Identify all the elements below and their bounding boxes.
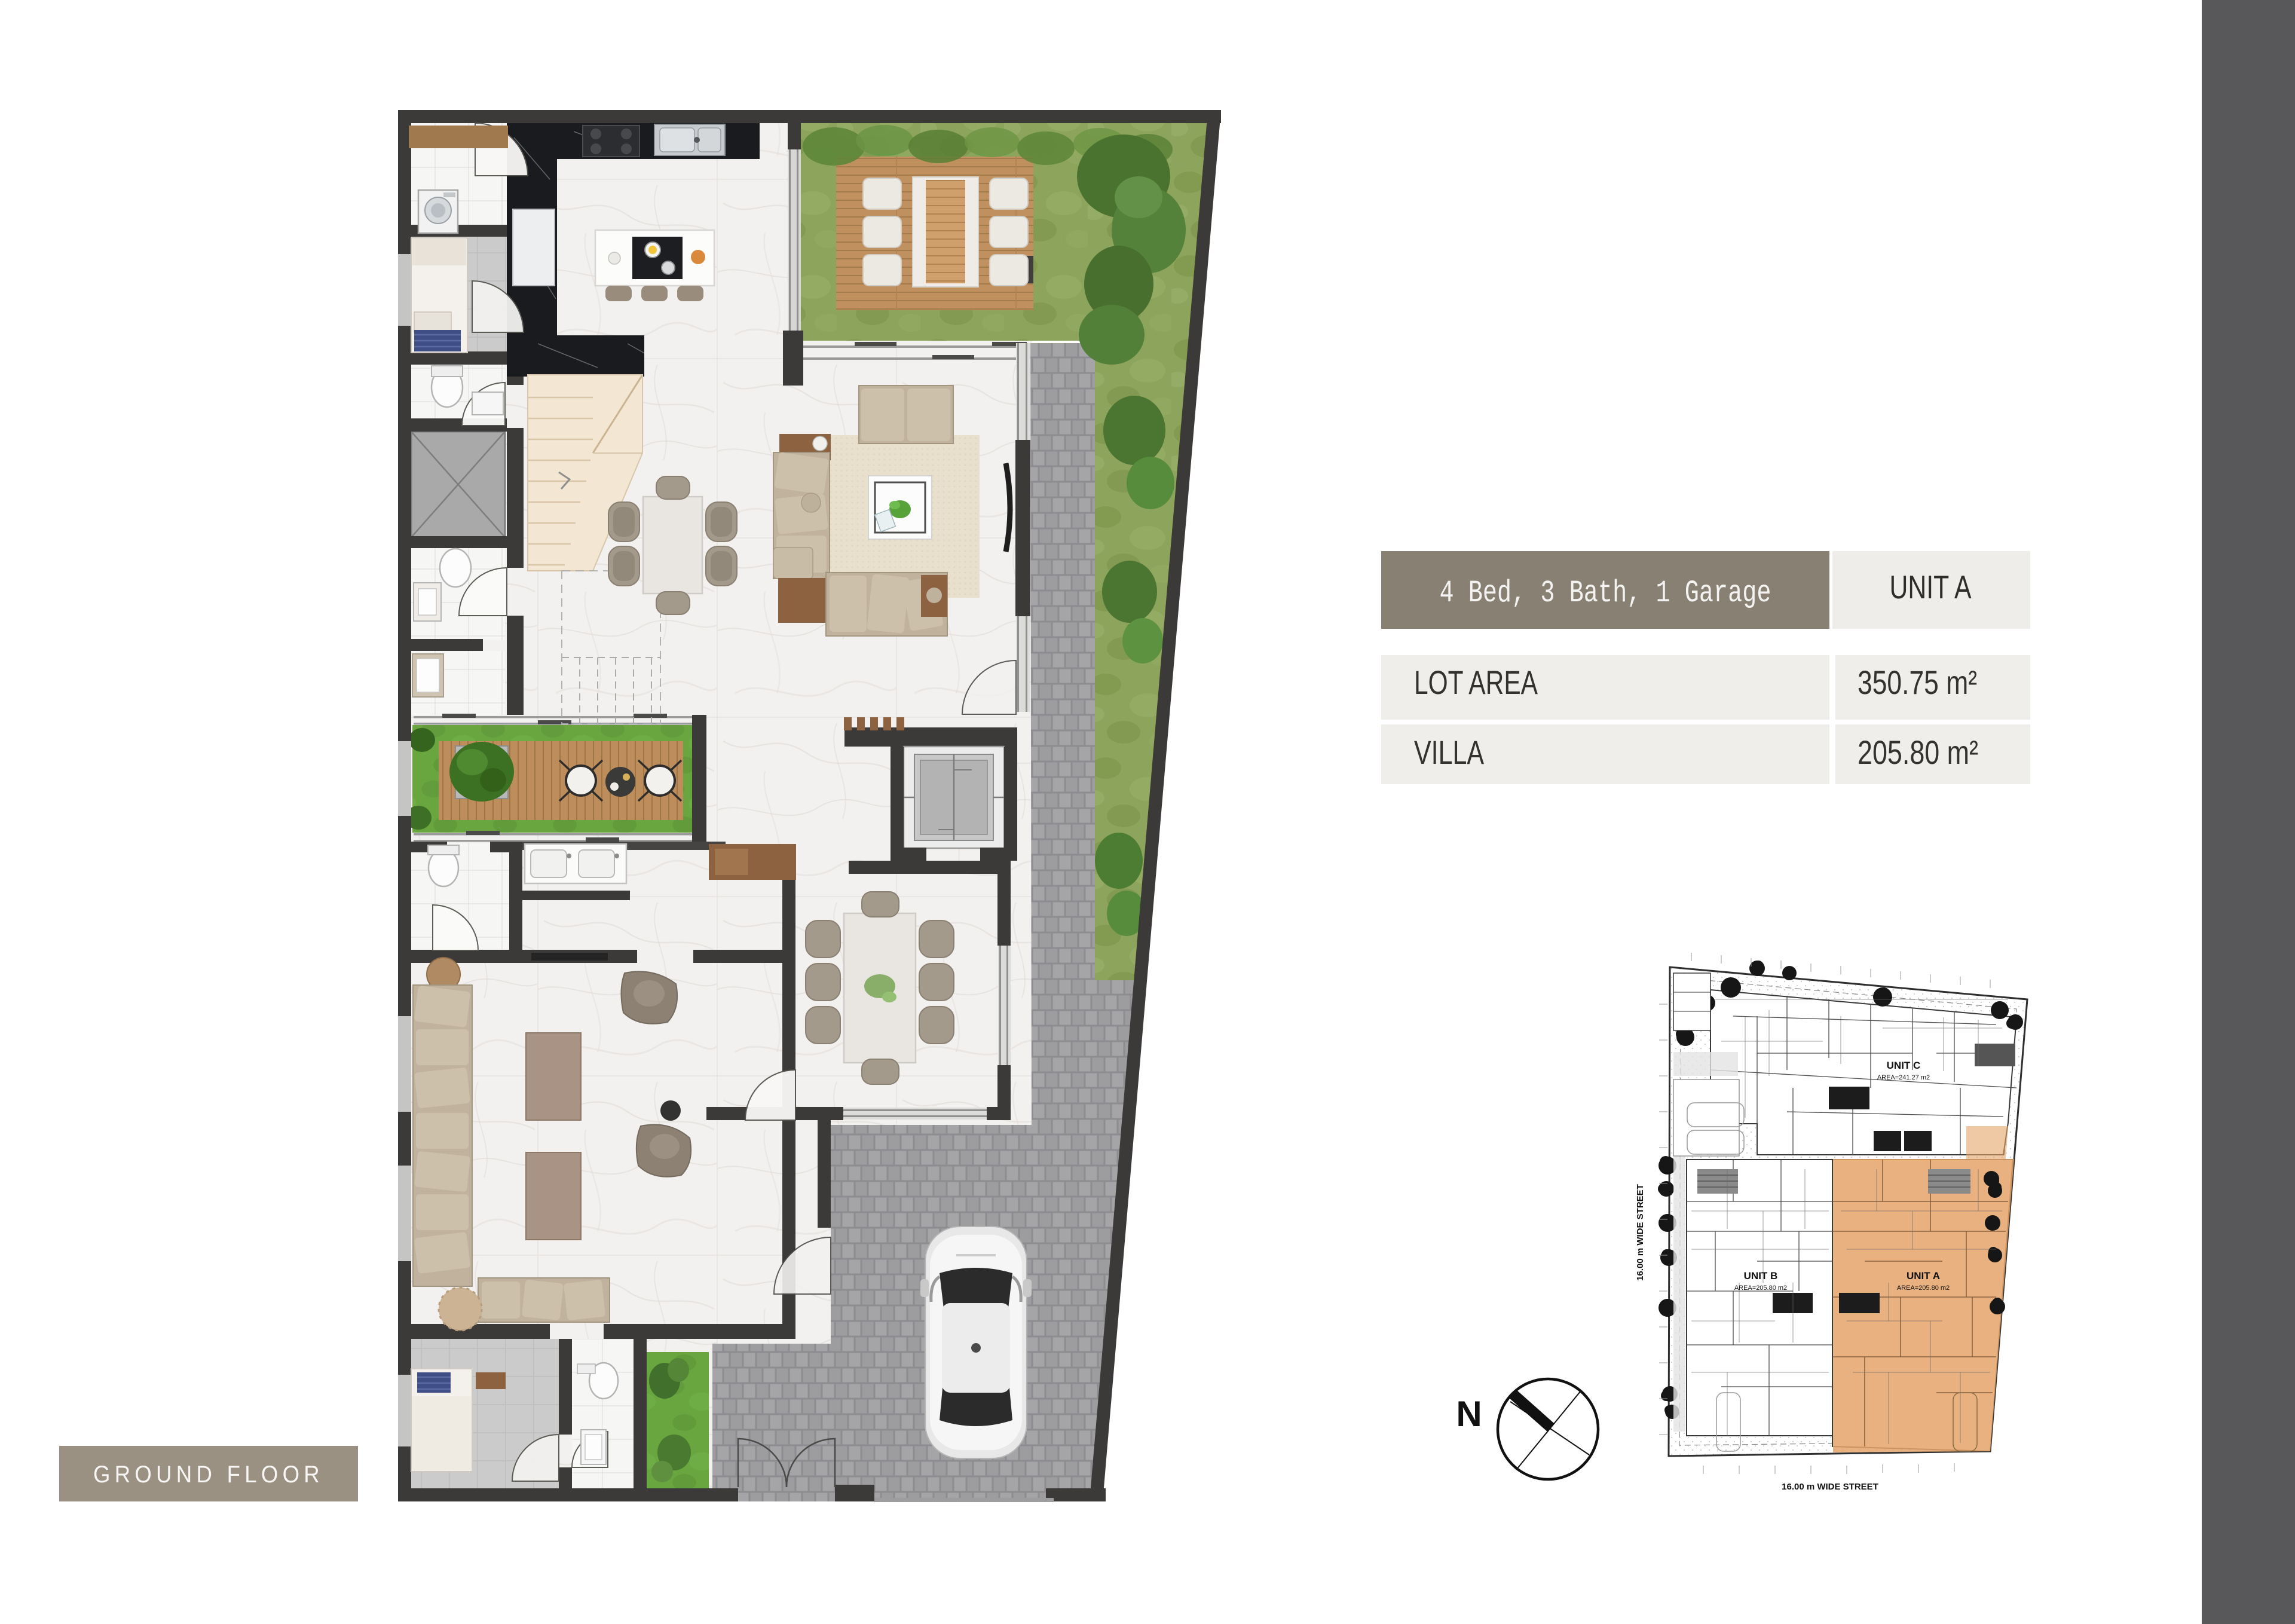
svg-text:AREA=205.80 m2: AREA=205.80 m2 [1734, 1284, 1787, 1292]
svg-text:16.00 m WIDE STREET: 16.00 m WIDE STREET [1782, 1482, 1878, 1492]
svg-text:16.00 m WIDE STREET: 16.00 m WIDE STREET [1635, 1184, 1645, 1281]
svg-text:205.80 m²: 205.80 m² [1858, 733, 1978, 771]
svg-text:N: N [1456, 1394, 1482, 1434]
svg-text:UNIT A: UNIT A [1907, 1270, 1940, 1282]
svg-text:UNIT A: UNIT A [1890, 568, 1972, 605]
svg-text:VILLA: VILLA [1414, 733, 1484, 771]
svg-text:4 Bed, 3 Bath, 1 Garage: 4 Bed, 3 Bath, 1 Garage [1440, 576, 1771, 611]
svg-text:AREA=241.27 m2: AREA=241.27 m2 [1877, 1074, 1930, 1081]
svg-text:GROUND FLOOR: GROUND FLOOR [93, 1461, 324, 1488]
svg-text:AREA=205.80 m2: AREA=205.80 m2 [1897, 1284, 1950, 1292]
svg-text:LOT AREA: LOT AREA [1414, 663, 1538, 701]
svg-text:UNIT C: UNIT C [1887, 1060, 1921, 1071]
svg-text:350.75 m²: 350.75 m² [1858, 663, 1977, 701]
svg-text:UNIT B: UNIT B [1744, 1270, 1778, 1282]
